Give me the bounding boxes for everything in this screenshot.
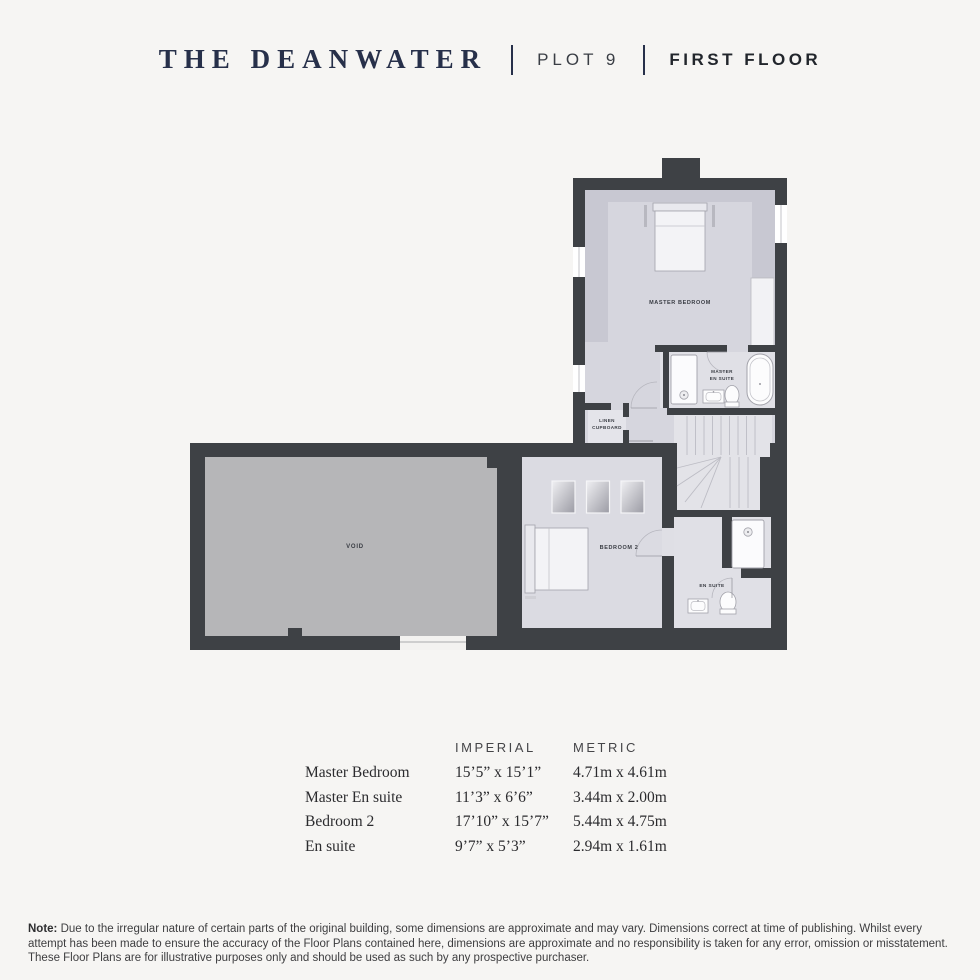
- bedroom2-label: BEDROOM 2: [600, 545, 639, 551]
- chimney: [662, 158, 700, 180]
- toilet-icon: [725, 386, 739, 408]
- floor-label: FIRST FLOOR: [669, 50, 821, 70]
- bedroom2: [522, 457, 677, 628]
- room-name: Master Bedroom: [305, 761, 455, 786]
- en-suite-label: EN SUITE: [699, 583, 725, 589]
- shower-icon: [732, 520, 764, 568]
- note-label: Note:: [28, 923, 57, 935]
- bed2-icon: [525, 525, 588, 599]
- page: THE DEANWATER PLOT 9 FIRST FLOOR: [0, 0, 980, 980]
- room-name: En suite: [305, 835, 455, 860]
- room-name: Bedroom 2: [305, 810, 455, 835]
- note-text: Due to the irregular nature of certain p…: [28, 923, 948, 964]
- master-en-suite-label-2: EN SUITE: [710, 376, 734, 381]
- header-divider: [511, 45, 513, 75]
- basin-icon: [688, 599, 708, 613]
- staircase: [674, 415, 772, 510]
- void-label: VOID: [346, 544, 364, 550]
- imperial-value: 15’5” x 15’1”: [455, 761, 573, 786]
- imperial-value: 11’3” x 6’6”: [455, 786, 573, 811]
- basin-icon: [703, 390, 724, 403]
- wardrobe-icon: [751, 278, 774, 348]
- linen-cupboard-label-2: CUPBOARD: [592, 425, 622, 430]
- linen-cupboard-label-1: LINEN: [599, 418, 615, 423]
- master-bedroom-label: MASTER BEDROOM: [649, 300, 711, 306]
- metric-value: 5.44m x 4.75m: [573, 810, 693, 835]
- imperial-value: 17’10” x 15’7”: [455, 810, 573, 835]
- floorplan-svg: MASTER BEDROOM MASTER EN SUITE LINEN CUP…: [185, 150, 805, 660]
- master-bed-icon: [644, 203, 715, 271]
- page-title: THE DEANWATER: [159, 44, 487, 75]
- metric-header: METRIC: [573, 740, 693, 761]
- window: [775, 205, 787, 243]
- skylight-icon: [587, 481, 610, 513]
- void-room: [205, 457, 497, 650]
- plot-label: PLOT 9: [537, 50, 619, 70]
- header-divider: [643, 45, 645, 75]
- metric-value: 4.71m x 4.61m: [573, 761, 693, 786]
- dimensions-table: IMPERIAL METRIC Master Bedroom 15’5” x 1…: [305, 740, 693, 859]
- toilet-icon: [720, 592, 736, 614]
- header: THE DEANWATER PLOT 9 FIRST FLOOR: [0, 44, 980, 75]
- skylight-icon: [552, 481, 575, 513]
- bathtub-icon: [747, 354, 773, 405]
- imperial-value: 9’7” x 5’3”: [455, 835, 573, 860]
- room-name: Master En suite: [305, 786, 455, 811]
- master-en-suite-label-1: MASTER: [711, 369, 733, 374]
- metric-value: 3.44m x 2.00m: [573, 786, 693, 811]
- en-suite: [674, 517, 787, 628]
- disclaimer-note: Note: Due to the irregular nature of cer…: [28, 922, 952, 966]
- window: [573, 247, 585, 277]
- imperial-header: IMPERIAL: [455, 740, 573, 761]
- skylight-icon: [621, 481, 644, 513]
- metric-value: 2.94m x 1.61m: [573, 835, 693, 860]
- room-header-spacer: [305, 740, 455, 761]
- window: [573, 365, 585, 392]
